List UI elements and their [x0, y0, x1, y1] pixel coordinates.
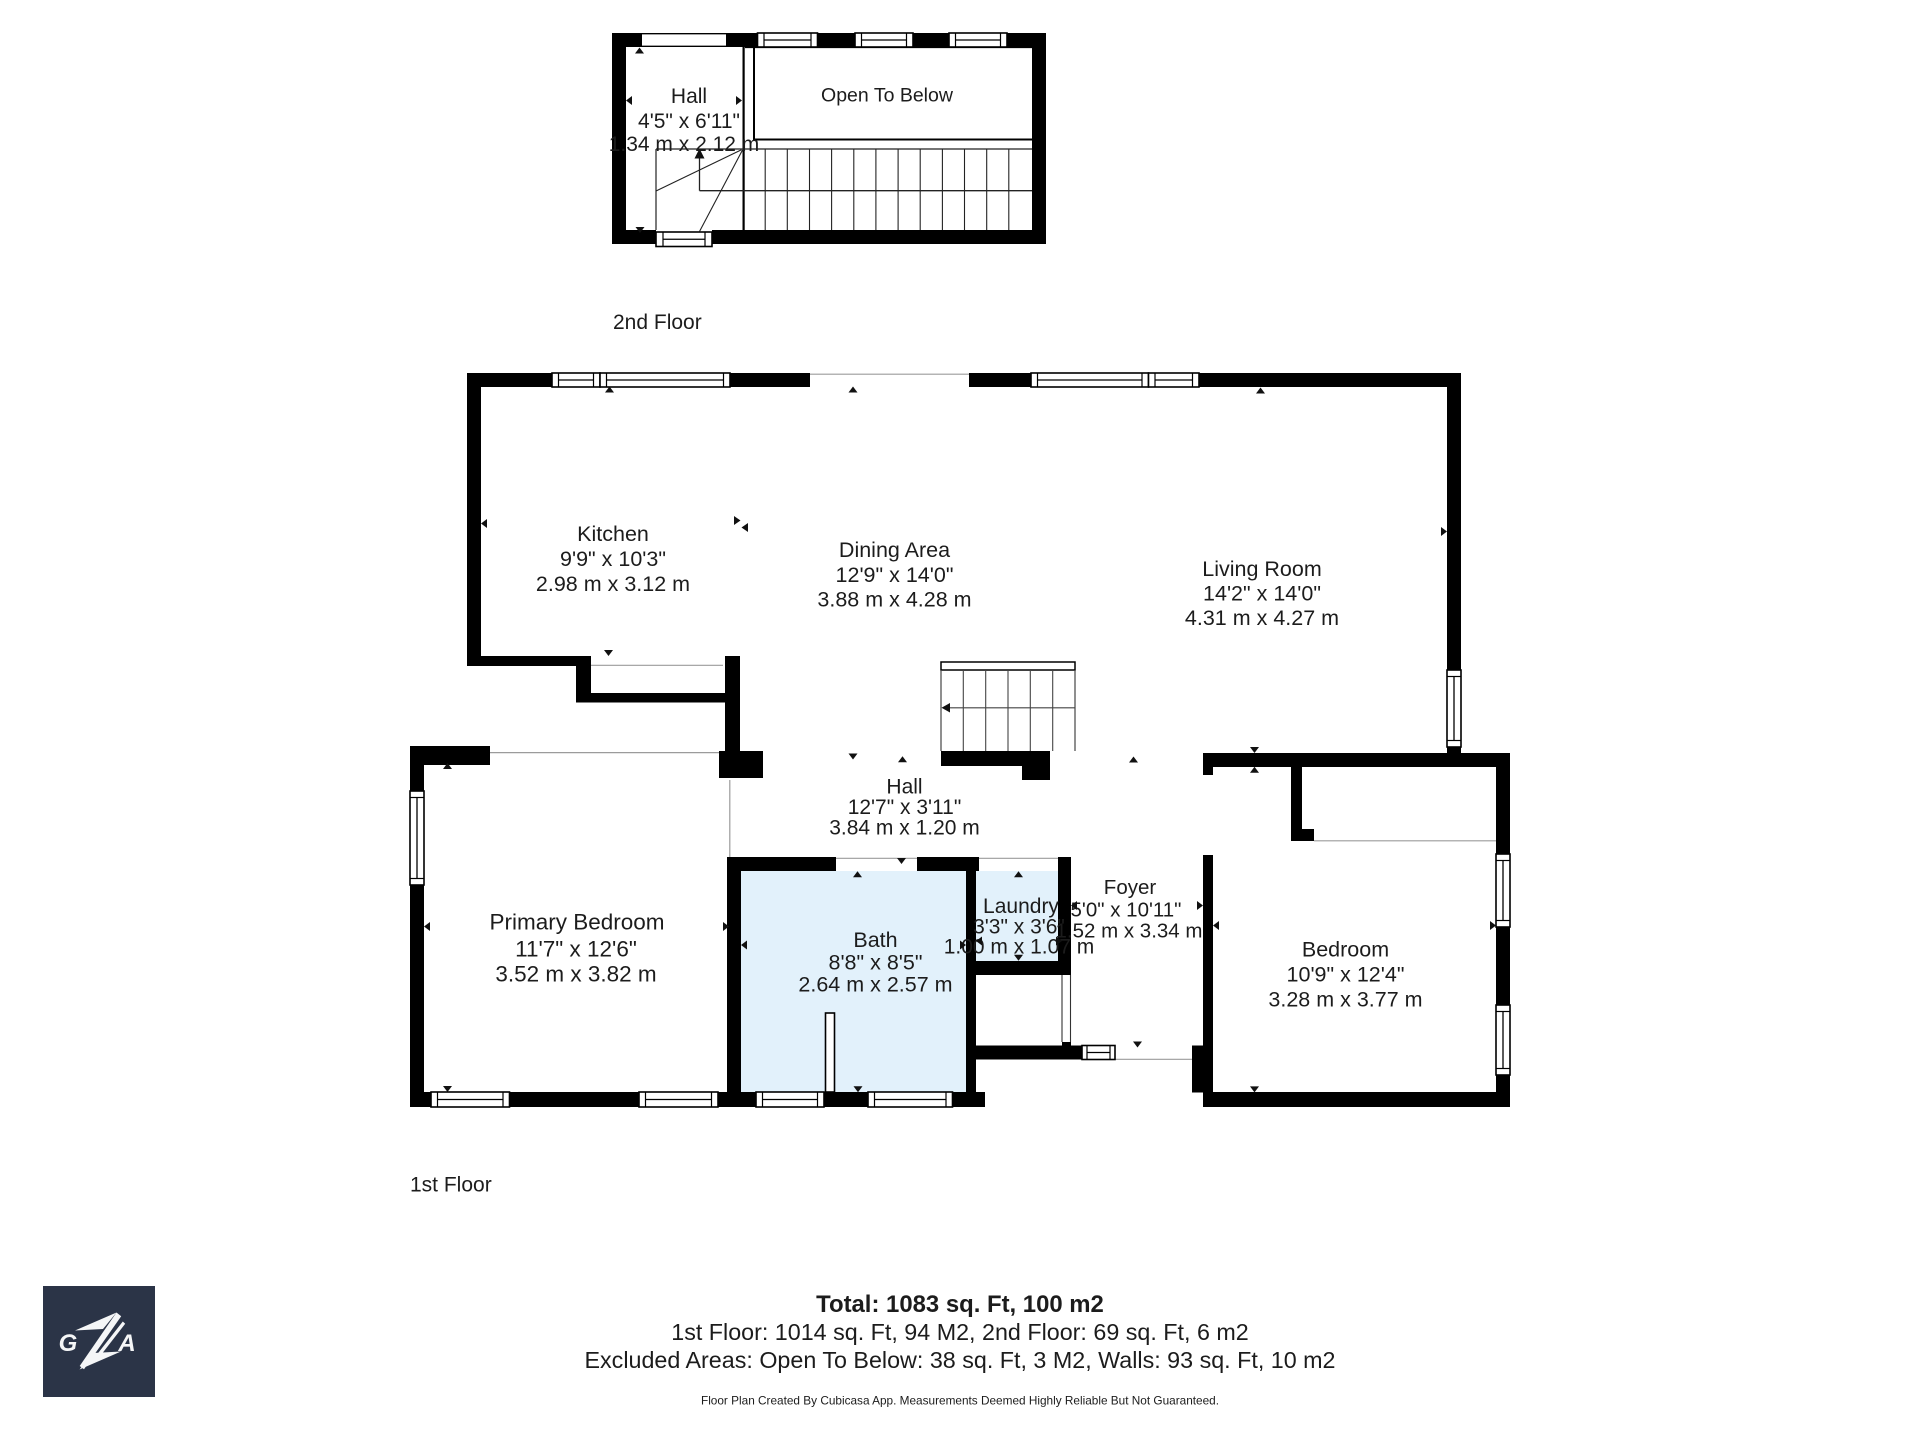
svg-text:Open To Below: Open To Below	[821, 85, 954, 107]
svg-text:2.98 m x 3.12 m: 2.98 m x 3.12 m	[536, 572, 690, 596]
svg-text:G: G	[59, 1330, 78, 1357]
svg-text:3.88 m x 4.28 m: 3.88 m x 4.28 m	[817, 588, 971, 612]
svg-text:Bedroom: Bedroom	[1302, 938, 1389, 962]
svg-text:11'7" x 12'6": 11'7" x 12'6"	[515, 937, 637, 962]
svg-text:Primary Bedroom: Primary Bedroom	[489, 910, 664, 935]
svg-text:Foyer: Foyer	[1104, 876, 1157, 899]
svg-text:Total: 1083 sq. Ft, 100 m2: Total: 1083 sq. Ft, 100 m2	[816, 1291, 1104, 1318]
svg-text:1.34 m x 2.12 m: 1.34 m x 2.12 m	[609, 133, 760, 156]
svg-text:Living Room: Living Room	[1202, 557, 1322, 581]
svg-text:5'0" x 10'11": 5'0" x 10'11"	[1071, 899, 1182, 922]
svg-text:1st Floor: 1st Floor	[410, 1174, 492, 1197]
svg-text:2nd Floor: 2nd Floor	[613, 311, 702, 334]
svg-text:Floor Plan Created By Cubicasa: Floor Plan Created By Cubicasa App. Meas…	[701, 1394, 1219, 1408]
svg-text:Excluded Areas: Open To Below:: Excluded Areas: Open To Below: 38 sq. Ft…	[584, 1347, 1335, 1373]
svg-text:2.64 m x 2.57 m: 2.64 m x 2.57 m	[798, 973, 952, 997]
svg-text:8'8" x 8'5": 8'8" x 8'5"	[829, 951, 923, 975]
svg-text:3.52 m x 3.82 m: 3.52 m x 3.82 m	[495, 962, 656, 987]
svg-text:4.31 m x 4.27 m: 4.31 m x 4.27 m	[1185, 606, 1339, 630]
svg-text:3.84 m x 1.20 m: 3.84 m x 1.20 m	[829, 817, 980, 840]
svg-text:Kitchen: Kitchen	[577, 522, 649, 546]
svg-text:Dining Area: Dining Area	[839, 538, 950, 562]
svg-text:1st Floor: 1014 sq. Ft, 94 M2,: 1st Floor: 1014 sq. Ft, 94 M2, 2nd Floor…	[671, 1319, 1249, 1345]
svg-text:3.28 m x 3.77 m: 3.28 m x 3.77 m	[1268, 988, 1422, 1012]
svg-text:Hall: Hall	[671, 85, 707, 108]
svg-text:14'2" x 14'0": 14'2" x 14'0"	[1203, 582, 1321, 606]
svg-text:1.52 m x 3.34 m: 1.52 m x 3.34 m	[1056, 920, 1203, 943]
svg-text:A: A	[117, 1330, 135, 1357]
svg-text:10'9" x 12'4": 10'9" x 12'4"	[1287, 963, 1405, 987]
svg-text:4'5" x 6'11": 4'5" x 6'11"	[638, 110, 740, 133]
svg-text:9'9" x 10'3": 9'9" x 10'3"	[560, 547, 666, 571]
svg-text:12'9" x 14'0": 12'9" x 14'0"	[836, 563, 954, 587]
svg-text:Bath: Bath	[853, 928, 897, 952]
